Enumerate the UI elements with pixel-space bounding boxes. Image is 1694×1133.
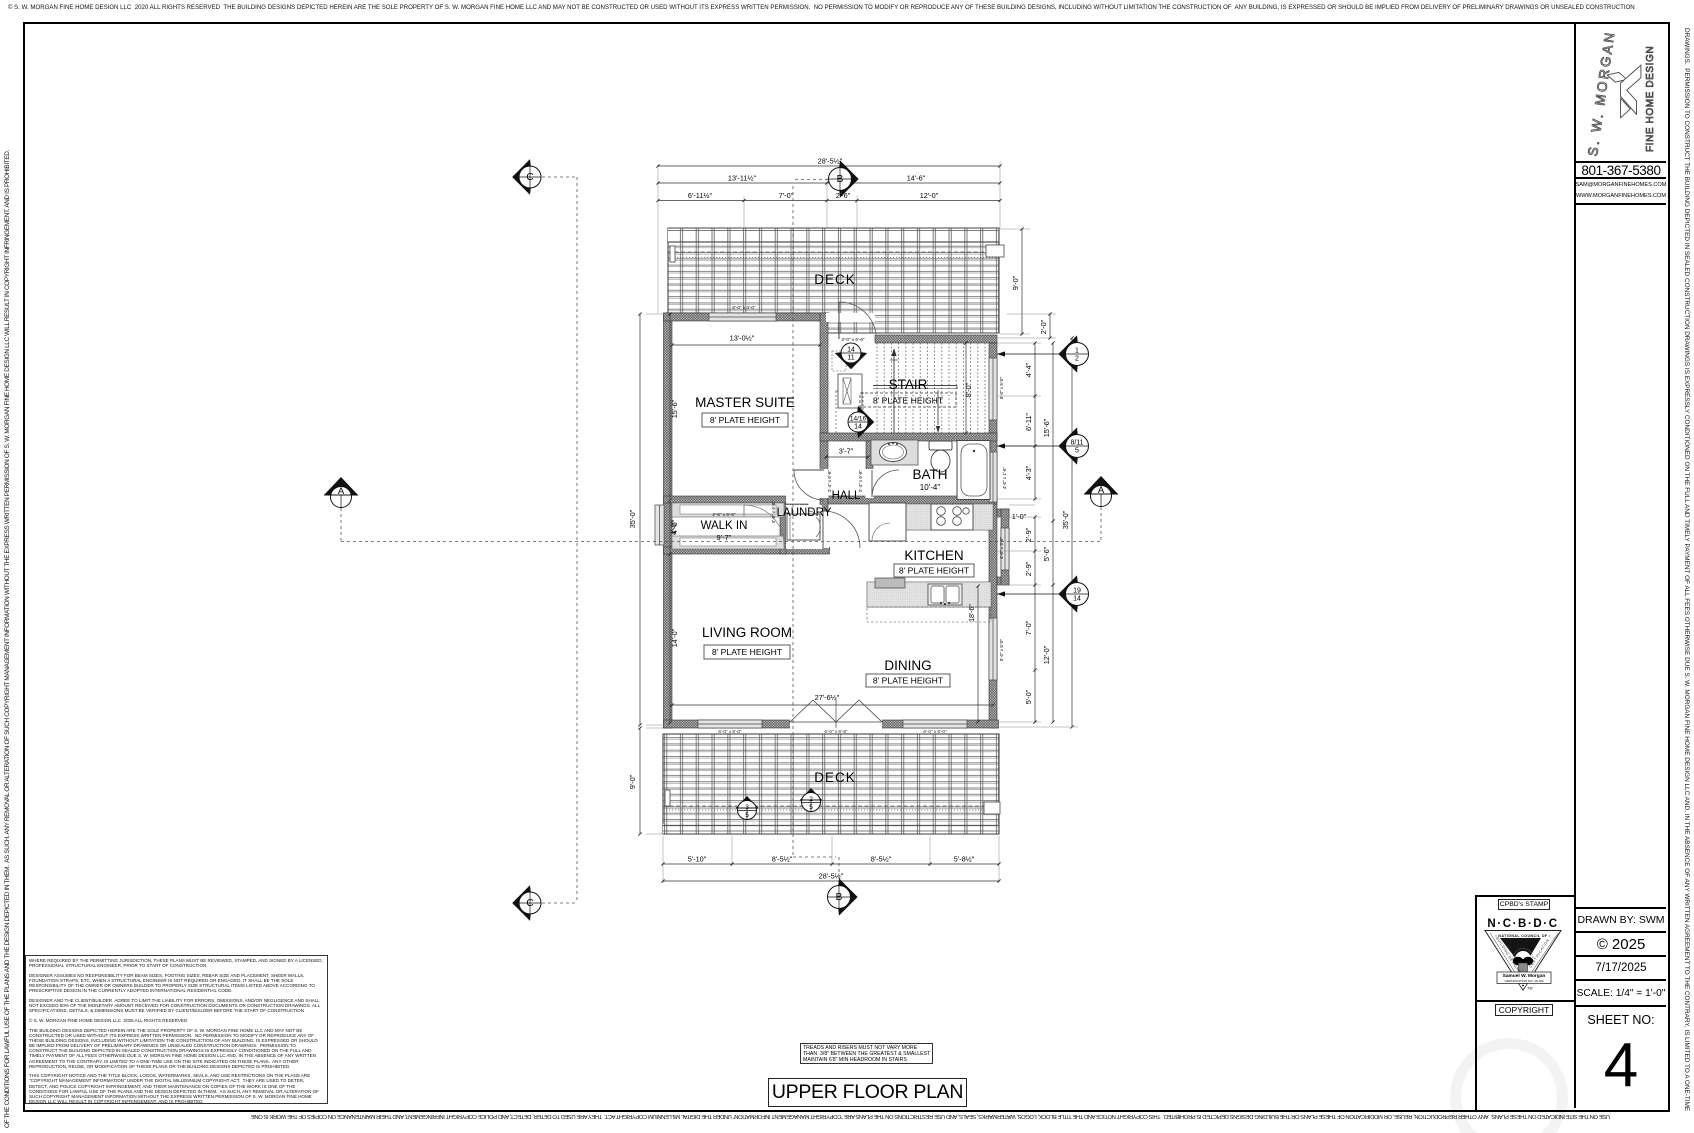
svg-text:10'-4": 10'-4"	[920, 483, 941, 492]
svg-text:28'-5½": 28'-5½"	[819, 872, 844, 881]
svg-text:STAIR: STAIR	[889, 377, 928, 392]
svg-text:N·C·B·D·C: N·C·B·D·C	[1487, 918, 1558, 930]
svg-text:8' PLATE HEIGHT: 8' PLATE HEIGHT	[712, 647, 783, 657]
svg-text:6'-0" x 4'-0": 6'-0" x 4'-0"	[732, 305, 756, 310]
svg-text:HALL: HALL	[832, 490, 861, 502]
svg-text:4'-4": 4'-4"	[1024, 362, 1033, 377]
svg-text:MASTER SUITE: MASTER SUITE	[695, 395, 795, 410]
svg-text:CERTIFICATION NO. 40-104: CERTIFICATION NO. 40-104	[1504, 979, 1543, 983]
svg-text:6'-11½": 6'-11½"	[688, 191, 713, 200]
svg-text:35'-0": 35'-0"	[1061, 510, 1070, 529]
svg-text:5'-10": 5'-10"	[688, 855, 707, 864]
svg-text:3'-0" x 6'-6": 3'-0" x 6'-6"	[841, 337, 865, 342]
svg-text:TM: TM	[1528, 987, 1533, 991]
svg-text:9'-7": 9'-7"	[717, 533, 732, 542]
svg-text:5'-0" x 5'-0": 5'-0" x 5'-0"	[999, 377, 1004, 400]
svg-text:8' PLATE HEIGHT: 8' PLATE HEIGHT	[873, 676, 944, 686]
svg-text:5'-8½": 5'-8½"	[954, 855, 975, 864]
svg-text:6'-0" x 6'-0": 6'-0" x 6'-0"	[718, 729, 742, 734]
svg-text:A: A	[1098, 485, 1105, 496]
svg-text:8'-0": 8'-0"	[964, 382, 973, 397]
svg-text:1: 1	[1075, 348, 1079, 355]
svg-text:15'-6": 15'-6"	[1042, 418, 1051, 437]
svg-text:7'-0": 7'-0"	[1024, 620, 1033, 635]
svg-text:3'-0" x 6'-8": 3'-0" x 6'-8"	[771, 501, 776, 524]
svg-text:28'-5½": 28'-5½"	[818, 157, 843, 166]
svg-text:3'-7": 3'-7"	[839, 447, 854, 456]
svg-text:5'-6": 5'-6"	[1042, 546, 1051, 561]
svg-text:1'-0": 1'-0"	[1012, 512, 1027, 521]
svg-text:11: 11	[847, 355, 854, 362]
svg-text:5: 5	[809, 804, 813, 811]
svg-text:19: 19	[1073, 588, 1081, 595]
svg-text:12'-0": 12'-0"	[1042, 645, 1051, 664]
svg-text:8'-5½": 8'-5½"	[871, 855, 892, 864]
svg-text:DINING: DINING	[884, 658, 931, 673]
svg-text:LAUNDRY: LAUNDRY	[777, 507, 832, 519]
svg-text:4'-0" x 1'-6": 4'-0" x 1'-6"	[1002, 467, 1007, 490]
svg-text:4'-3": 4'-3"	[1024, 465, 1033, 480]
svg-text:8' PLATE HEIGHT: 8' PLATE HEIGHT	[899, 566, 970, 576]
svg-text:2'-4" x 6'-8": 2'-4" x 6'-8"	[858, 470, 863, 493]
svg-text:13'-11½": 13'-11½"	[728, 174, 757, 183]
svg-text:6'-11": 6'-11"	[1024, 413, 1033, 431]
svg-text:2'-4" x 6'-8": 2'-4" x 6'-8"	[827, 470, 832, 493]
svg-text:14: 14	[854, 424, 862, 431]
svg-text:8/11: 8/11	[1070, 440, 1083, 447]
svg-text:• NATIONAL COUNCIL OF •: • NATIONAL COUNCIL OF •	[1495, 934, 1551, 938]
svg-text:5'-0": 5'-0"	[1024, 689, 1033, 704]
svg-text:2'-0": 2'-0"	[1039, 319, 1048, 334]
svg-text:14'-6": 14'-6"	[907, 174, 926, 183]
svg-text:BATH: BATH	[912, 467, 947, 482]
svg-text:9'-0": 9'-0"	[628, 774, 637, 789]
svg-text:2'-9": 2'-9"	[1024, 527, 1033, 542]
svg-text:5'-0" x 5'-0": 5'-0" x 5'-0"	[999, 639, 1004, 662]
svg-text:35'-0": 35'-0"	[628, 509, 637, 528]
svg-text:4'-0": 4'-0"	[671, 521, 678, 535]
svg-text:27'-6½": 27'-6½"	[815, 693, 840, 702]
svg-text:DECK: DECK	[814, 272, 856, 287]
svg-text:12'-0": 12'-0"	[920, 191, 939, 200]
svg-text:8' PLATE HEIGHT: 8' PLATE HEIGHT	[873, 396, 944, 406]
svg-text:15'-6": 15'-6"	[670, 399, 679, 418]
svg-text:2'-9": 2'-9"	[1024, 561, 1033, 576]
svg-text:8'-5½": 8'-5½"	[772, 855, 793, 864]
svg-text:3: 3	[745, 804, 749, 811]
svg-text:13'-0½": 13'-0½"	[730, 334, 755, 343]
svg-text:14/16: 14/16	[850, 416, 867, 423]
svg-text:14'-0": 14'-0"	[670, 628, 679, 647]
svg-text:LIVING ROOM: LIVING ROOM	[702, 625, 792, 640]
svg-text:8' PLATE HEIGHT: 8' PLATE HEIGHT	[710, 415, 781, 425]
svg-text:KITCHEN: KITCHEN	[904, 548, 963, 563]
svg-text:DECK: DECK	[814, 770, 856, 785]
svg-text:WALK IN: WALK IN	[701, 520, 748, 532]
svg-text:2'-6" x 6'-6": 2'-6" x 6'-6"	[712, 512, 736, 517]
svg-text:2: 2	[809, 796, 813, 803]
svg-text:6'-0" x 6'-0": 6'-0" x 6'-0"	[923, 729, 947, 734]
svg-text:6'-0" x 6'-8": 6'-0" x 6'-8"	[824, 729, 848, 734]
svg-text:5: 5	[1075, 448, 1079, 455]
svg-text:7'-0": 7'-0"	[779, 191, 794, 200]
svg-text:A: A	[338, 486, 345, 497]
svg-text:5: 5	[745, 812, 749, 819]
svg-text:14: 14	[847, 347, 855, 354]
svg-text:18'-6": 18'-6"	[969, 604, 976, 622]
svg-text:4'-0" x 3'-0": 4'-0" x 3'-0"	[999, 537, 1004, 560]
svg-text:14: 14	[1073, 596, 1081, 603]
svg-text:9'-0": 9'-0"	[1011, 275, 1020, 290]
svg-text:2: 2	[1075, 356, 1079, 363]
